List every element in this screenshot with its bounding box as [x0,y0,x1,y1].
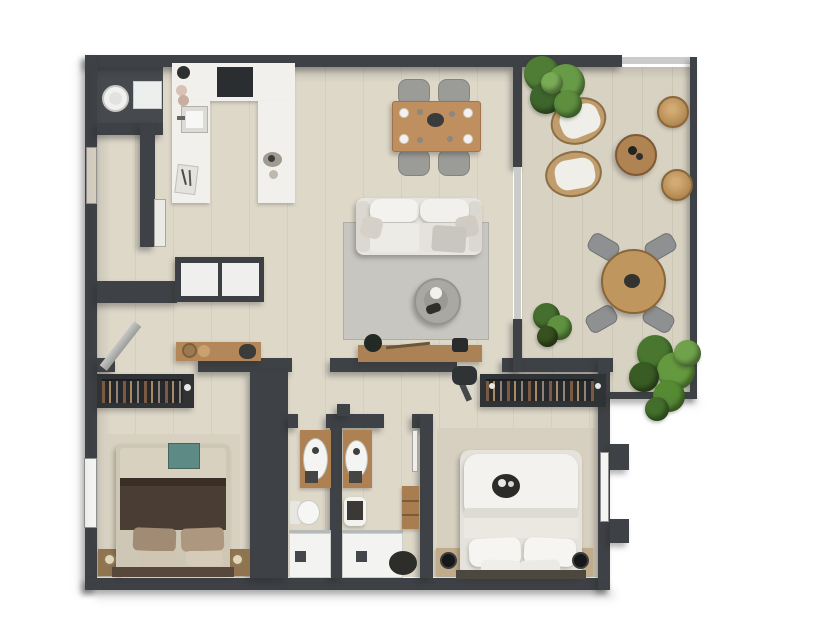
bed1-pillow-c [139,551,176,566]
bed2-lamp-right [572,552,589,569]
wine-glass-a [417,109,423,115]
vanity2-towel [349,471,362,483]
terrace-centerpiece [624,274,640,288]
bed2-tray [492,474,520,498]
wall-entry-partition [140,123,155,247]
floor-plan-canvas [0,0,840,630]
wardrobe2-clothes [486,379,594,401]
coffee-cup [430,287,442,299]
kitchen-dish-b [178,95,189,106]
cutting-board [174,164,198,195]
wall-bedroom2-west [420,414,433,578]
dining-centerpiece [427,113,444,127]
wall-bath-north-a [288,414,298,428]
shower2-drain [356,551,367,562]
wall-bottom [85,578,610,590]
plate-d [463,134,473,144]
wall-entry-corner [97,281,177,303]
sink-faucet [177,116,185,120]
shutter-box-b [610,519,629,543]
terrace-rail-glass [622,57,690,64]
bed2-blanket [464,518,578,538]
entry-door [86,147,97,204]
plant-top-leaf-e [541,72,563,94]
wardrobe1-clothes [102,379,183,403]
shelf-line-a [402,500,419,502]
bed1-pillow-d [186,551,223,566]
wine-glass-b [449,111,455,117]
wall-bath-jamb [337,404,350,416]
plan-shadow-left [74,60,85,594]
kitchen-cup [269,170,278,179]
bed1-lamp-right [231,553,244,566]
bed2-cup-b [508,481,514,487]
cooktop [217,67,253,97]
sideboard-door-a [181,263,218,296]
sofa-throw [431,225,467,253]
plate-c [463,108,473,118]
shutter-box-a [610,444,629,470]
pouf-b [661,169,693,201]
washer-door [109,92,122,105]
shower2-towel [389,551,417,575]
wall-bath-north-b [326,414,384,428]
kitchen-bowl-dark [177,66,190,79]
dining-chair-sw [398,149,430,176]
bed2-cup-a [498,479,506,487]
vanity1-towel [305,471,318,483]
bed1-blanket-fold [120,478,226,486]
bed1-pillow-a [133,527,177,551]
hall-basket-a [182,343,197,358]
bed2-lamp-left [440,552,457,569]
hall-decor [239,344,256,359]
wardrobe1-knob [184,384,191,391]
plant-door-leaf-c [537,326,558,347]
shelf-line-b [402,514,419,516]
bed2-headboard [456,570,586,579]
plant-top-leaf-d [554,90,582,118]
wine-glass-d [447,136,453,142]
sideboard-door-b [222,263,259,296]
plan-shadow-bottom [95,590,615,604]
console-stool [452,366,477,385]
wall-terrace-divider-top [513,67,522,167]
dining-chair-se [438,149,470,176]
hall-basket-b [198,345,210,357]
console-decor [452,338,468,352]
utility-appliance [133,81,162,109]
wardrobe2-knob-a [489,383,495,389]
wall-bath-divider [330,428,342,578]
bathroom2-door [412,430,418,472]
plan-shadow-terrace [610,399,700,409]
shower1-drain [295,551,306,562]
wine-glass-c [417,137,423,143]
pouf-a [657,96,689,128]
bed1-wall-art [168,443,200,469]
bedroom1-window [84,458,97,528]
wall-shaft [250,372,288,578]
kitchen-door [154,199,166,247]
plate-b [399,134,409,144]
plate-a [399,108,409,118]
terrace-table-decor-b [636,153,643,160]
sink-basin [186,111,203,128]
bed1-lamp-left [103,553,116,566]
plant-corner-leaf-e [674,340,701,367]
wall-terrace-divider-bottom [513,319,522,372]
console-plant-pot [364,334,382,352]
bed1-blanket [120,486,226,530]
faucet1 [312,447,319,454]
bed1-headboard [112,567,234,577]
bath2-towels [347,501,363,520]
bed1-pillow-b [181,527,225,551]
bedroom2-window [600,452,609,522]
bath2-shelf [402,486,419,529]
bed2-duvet-fold [464,508,578,518]
terrace-sliding-door [514,167,521,319]
faucet2 [353,448,360,455]
kitchen-fruit [268,155,275,162]
toilet1-bowl [297,500,320,525]
wardrobe2-knob-b [595,383,601,389]
